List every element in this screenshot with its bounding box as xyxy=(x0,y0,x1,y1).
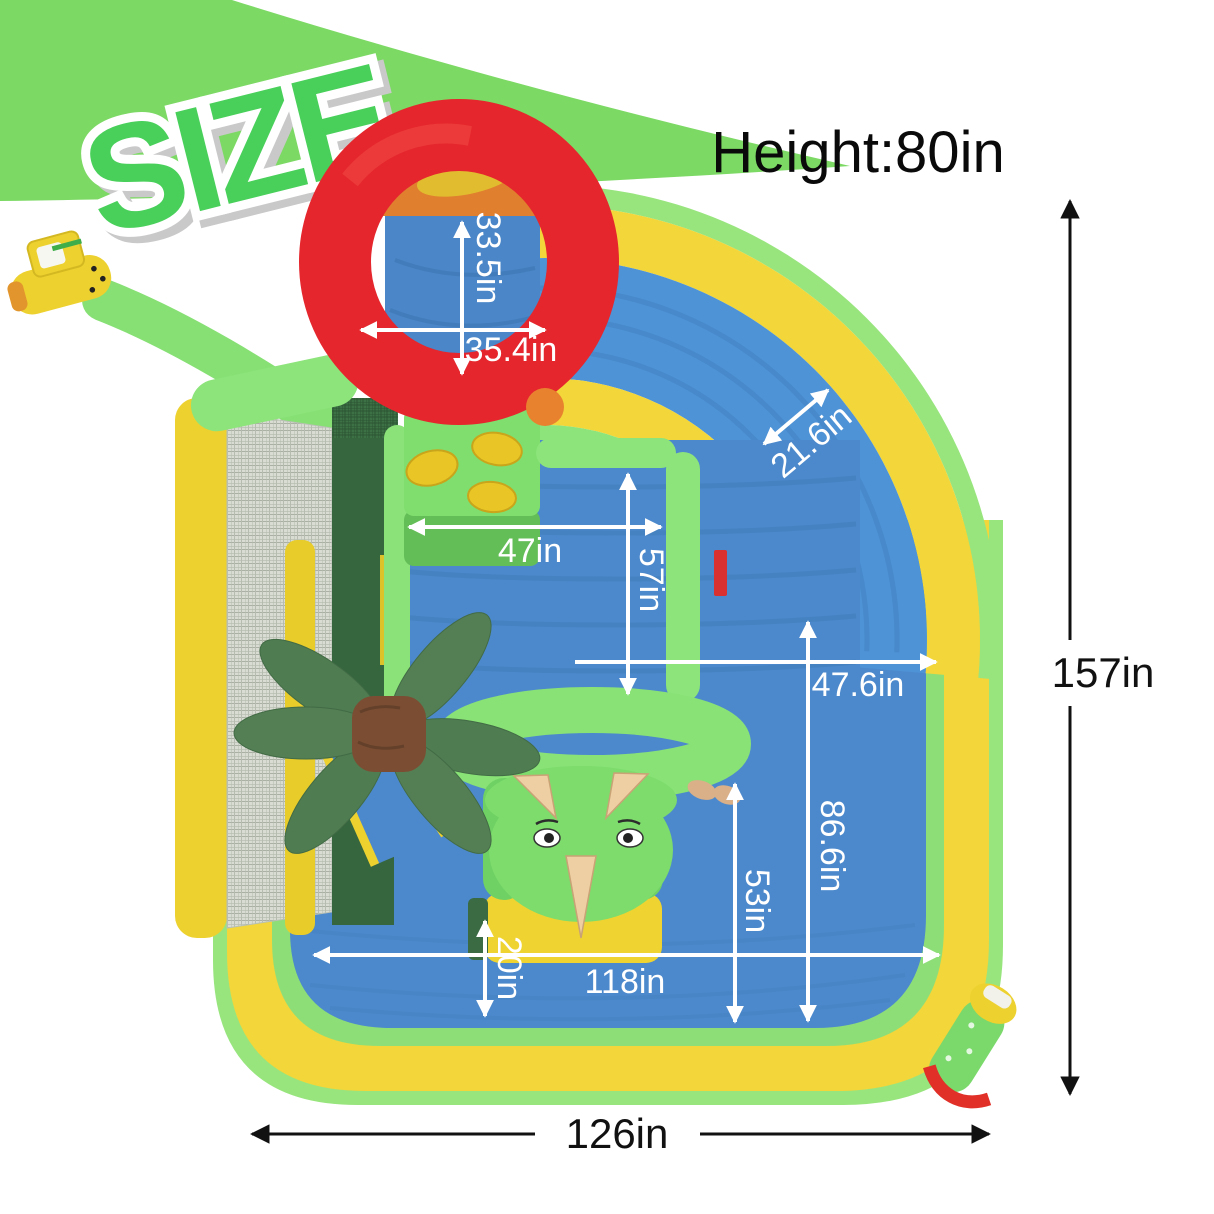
dim-label-pool-side-depth: 86.6in xyxy=(813,800,851,893)
brand-tag xyxy=(714,550,727,596)
arch-top-tube xyxy=(536,438,676,468)
dim-label-ring-height: 33.5in xyxy=(469,212,507,305)
dim-label-pool-side-width: 47.6in xyxy=(812,666,905,704)
size-diagram-page: SIZE SIZE Height:80in xyxy=(0,0,1214,1214)
orange-knob xyxy=(526,388,564,426)
dim-label-ring-width: 35.4in xyxy=(465,331,558,369)
dim-label-overall-width: 126in xyxy=(566,1110,669,1157)
dim-label-bounce-width: 47in xyxy=(498,532,562,570)
height-label: Height:80in xyxy=(711,120,1004,185)
house-yellow-pole xyxy=(175,398,227,938)
dim-label-hoop-depth: 53in xyxy=(738,869,776,933)
arch-column xyxy=(666,452,700,702)
dim-label-overall-depth: 157in xyxy=(1052,649,1155,696)
bounce-house-size-diagram: SIZE SIZE Height:80in xyxy=(0,0,1214,1214)
dim-label-pool-width: 118in xyxy=(585,963,666,1001)
dim-label-bounce-depth: 57in xyxy=(632,548,670,612)
dim-label-rim-depth: 20in xyxy=(490,936,528,1000)
